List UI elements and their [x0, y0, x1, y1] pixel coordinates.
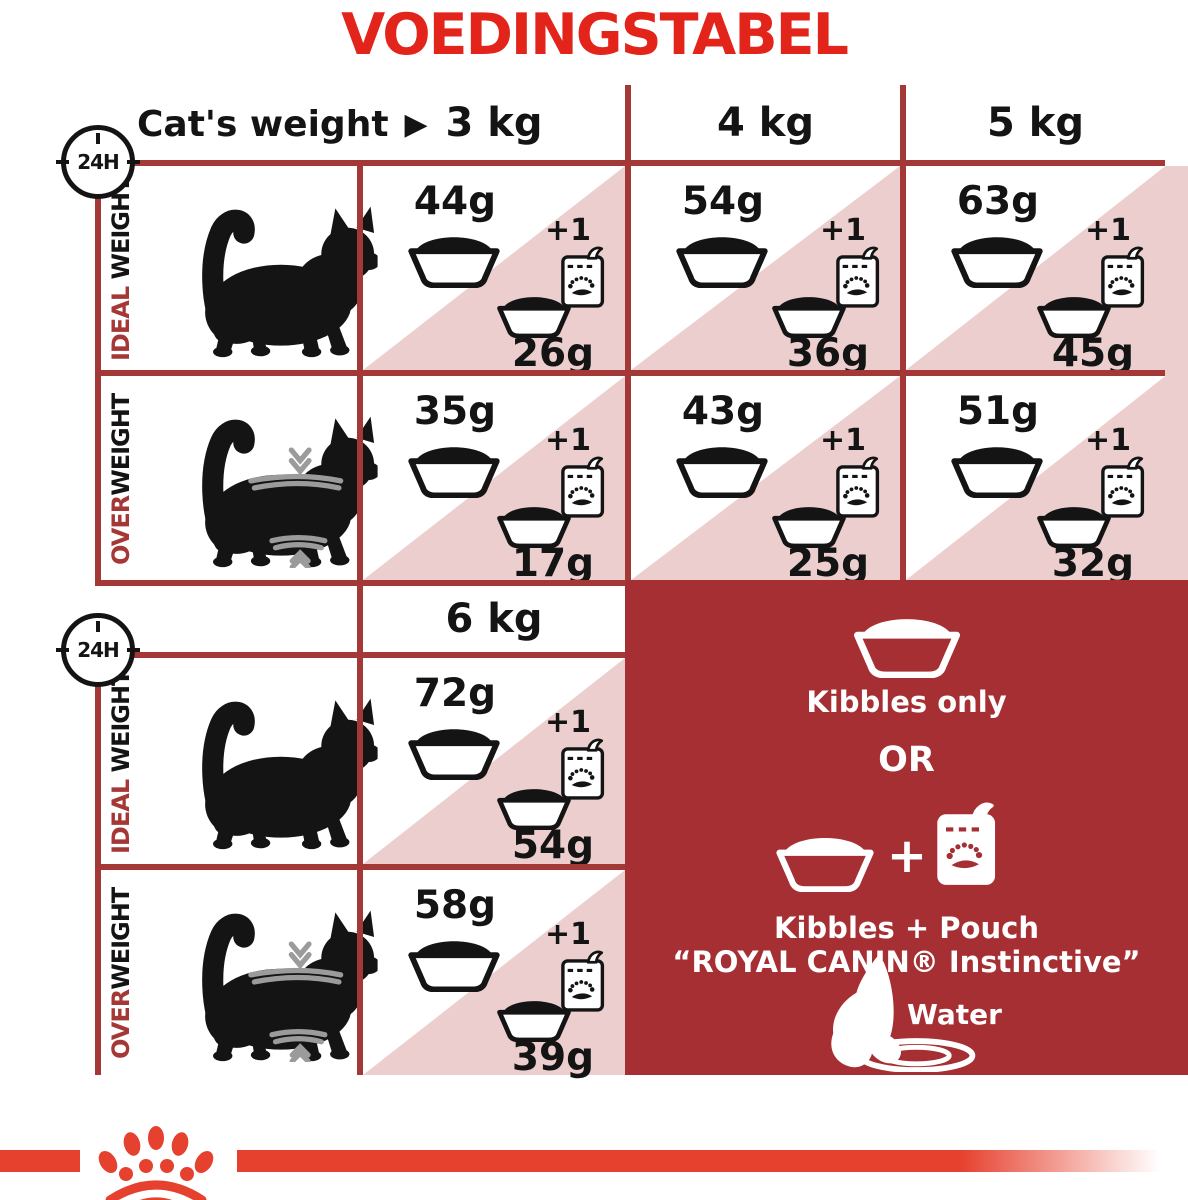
24h-clock-icon: 24H [61, 125, 135, 199]
feeding-cell-ideal-5kg: 63g +1 45g [906, 166, 1188, 370]
column-header-6kg: 6 kg [363, 586, 625, 652]
plus-one-pouch-label: +1 [1085, 426, 1129, 456]
food-bowl-icon [944, 226, 1050, 288]
24h-label: 24H [77, 150, 119, 174]
ideal-cat-cell [139, 658, 357, 864]
overweight-cat-cell [139, 870, 357, 1075]
table-border-left [95, 658, 101, 1075]
row-label-ideal-weight: IDEAL WEIGHT [103, 176, 139, 362]
plus-one-pouch-label: +1 [820, 426, 864, 456]
kibble-amount: 72g [385, 674, 525, 713]
kibble-amount: 51g [928, 392, 1068, 431]
24h-clock-icon: 24H [61, 613, 135, 687]
pouch-icon [935, 796, 1001, 894]
feeding-cell-overweight-6kg: 58g +1 39g [363, 870, 625, 1075]
food-bowl-icon [401, 930, 507, 992]
kibbles-only-label: Kibbles only [625, 686, 1188, 719]
clock-tick [56, 648, 69, 652]
row-label-accent: IDEAL [107, 780, 135, 854]
mix-kibble-amount: 17g [497, 544, 609, 583]
food-bowl-icon [401, 436, 507, 498]
overweight-cat-cell [139, 376, 357, 580]
header-divider [900, 85, 906, 166]
brand-stripe [237, 1150, 1188, 1172]
table-line [130, 160, 1165, 166]
clock-tick [127, 160, 140, 164]
food-bowl-icon [847, 606, 967, 678]
food-bowl-icon [401, 226, 507, 288]
mix-kibble-amount: 36g [772, 334, 884, 373]
row-label-rest: WEIGHT [107, 888, 135, 990]
water-label: Water [907, 998, 1002, 1031]
24h-label: 24H [77, 638, 119, 662]
column-divider [625, 166, 631, 580]
cat-silhouette-icon [163, 674, 381, 850]
feeding-options-panel: Kibbles only OR + Kibbles + Pouch “ROYAL… [625, 580, 1188, 1075]
kibble-amount: 63g [928, 182, 1068, 221]
kibble-amount: 54g [653, 182, 793, 221]
column-divider [357, 166, 363, 580]
plus-one-pouch-label: +1 [545, 920, 589, 950]
row-label-ideal-weight: IDEAL WEIGHT [103, 668, 139, 856]
table-border-left [95, 166, 101, 580]
mix-kibble-amount: 26g [497, 334, 609, 373]
kibble-amount: 43g [653, 392, 793, 431]
column-header-4kg: 4 kg [631, 100, 900, 146]
kibble-amount: 58g [385, 886, 525, 925]
column-header-3kg: 3 kg [363, 100, 625, 146]
clock-tick [96, 621, 100, 632]
mix-kibble-amount: 45g [1037, 334, 1149, 373]
food-bowl-icon [401, 718, 507, 780]
plus-one-pouch-label: +1 [820, 216, 864, 246]
food-bowl-icon [769, 826, 881, 892]
overweight-cat-silhouette-icon [163, 886, 381, 1062]
feeding-cell-overweight-3kg: 35g +1 17g [363, 376, 625, 580]
cats-weight-label: Cat's weight [137, 104, 389, 145]
feeding-cell-ideal-4kg: 54g +1 36g [631, 166, 900, 370]
feeding-cell-ideal-3kg: 44g +1 26g [363, 166, 625, 370]
plus-sign: + [883, 832, 931, 880]
kibble-amount: 35g [385, 392, 525, 431]
mix-kibble-amount: 25g [772, 544, 884, 583]
row-label-accent: OVER [107, 990, 135, 1059]
column-divider [357, 586, 363, 1075]
clock-tick [56, 160, 69, 164]
plus-one-pouch-label: +1 [1085, 216, 1129, 246]
food-bowl-icon [669, 436, 775, 498]
feeding-cell-ideal-6kg: 72g +1 54g [363, 658, 625, 864]
mix-kibble-amount: 54g [497, 826, 609, 865]
header-divider [625, 85, 631, 166]
cat-silhouette-icon [163, 182, 381, 358]
royal-canin-crown-logo [88, 1122, 224, 1200]
mix-kibble-amount: 39g [497, 1038, 609, 1077]
mix-kibble-amount: 32g [1037, 544, 1149, 583]
kibbles-pouch-label: Kibbles + Pouch [625, 912, 1188, 945]
plus-one-pouch-label: +1 [545, 708, 589, 738]
plus-one-pouch-label: +1 [545, 426, 589, 456]
or-label: OR [625, 740, 1188, 780]
column-header-5kg: 5 kg [906, 100, 1165, 146]
ideal-cat-cell [139, 166, 357, 370]
column-divider [900, 166, 906, 580]
feeding-table-infographic: VOEDINGSTABEL Cat's weight▶ 3 kg 4 kg 5 … [0, 0, 1188, 1200]
page-title: VOEDINGSTABEL [0, 2, 1188, 68]
clock-tick [127, 648, 140, 652]
clock-tick [96, 133, 100, 144]
overweight-cat-silhouette-icon [163, 392, 381, 568]
row-label-accent: OVER [107, 495, 135, 564]
row-label-overweight: OVERWEIGHT [103, 386, 139, 572]
brand-stripe [0, 1150, 80, 1172]
feeding-cell-overweight-5kg: 51g +1 32g [906, 376, 1188, 580]
row-label-rest: WEIGHT [107, 393, 135, 495]
kibble-amount: 44g [385, 182, 525, 221]
row-label-rest: WEIGHT [107, 670, 135, 779]
row-label-overweight: OVERWEIGHT [103, 880, 139, 1067]
table-line [131, 652, 625, 658]
plus-one-pouch-label: +1 [545, 216, 589, 246]
food-bowl-icon [669, 226, 775, 288]
row-label-accent: IDEAL [107, 287, 135, 361]
feeding-cell-overweight-4kg: 43g +1 25g [631, 376, 900, 580]
food-bowl-icon [944, 436, 1050, 498]
